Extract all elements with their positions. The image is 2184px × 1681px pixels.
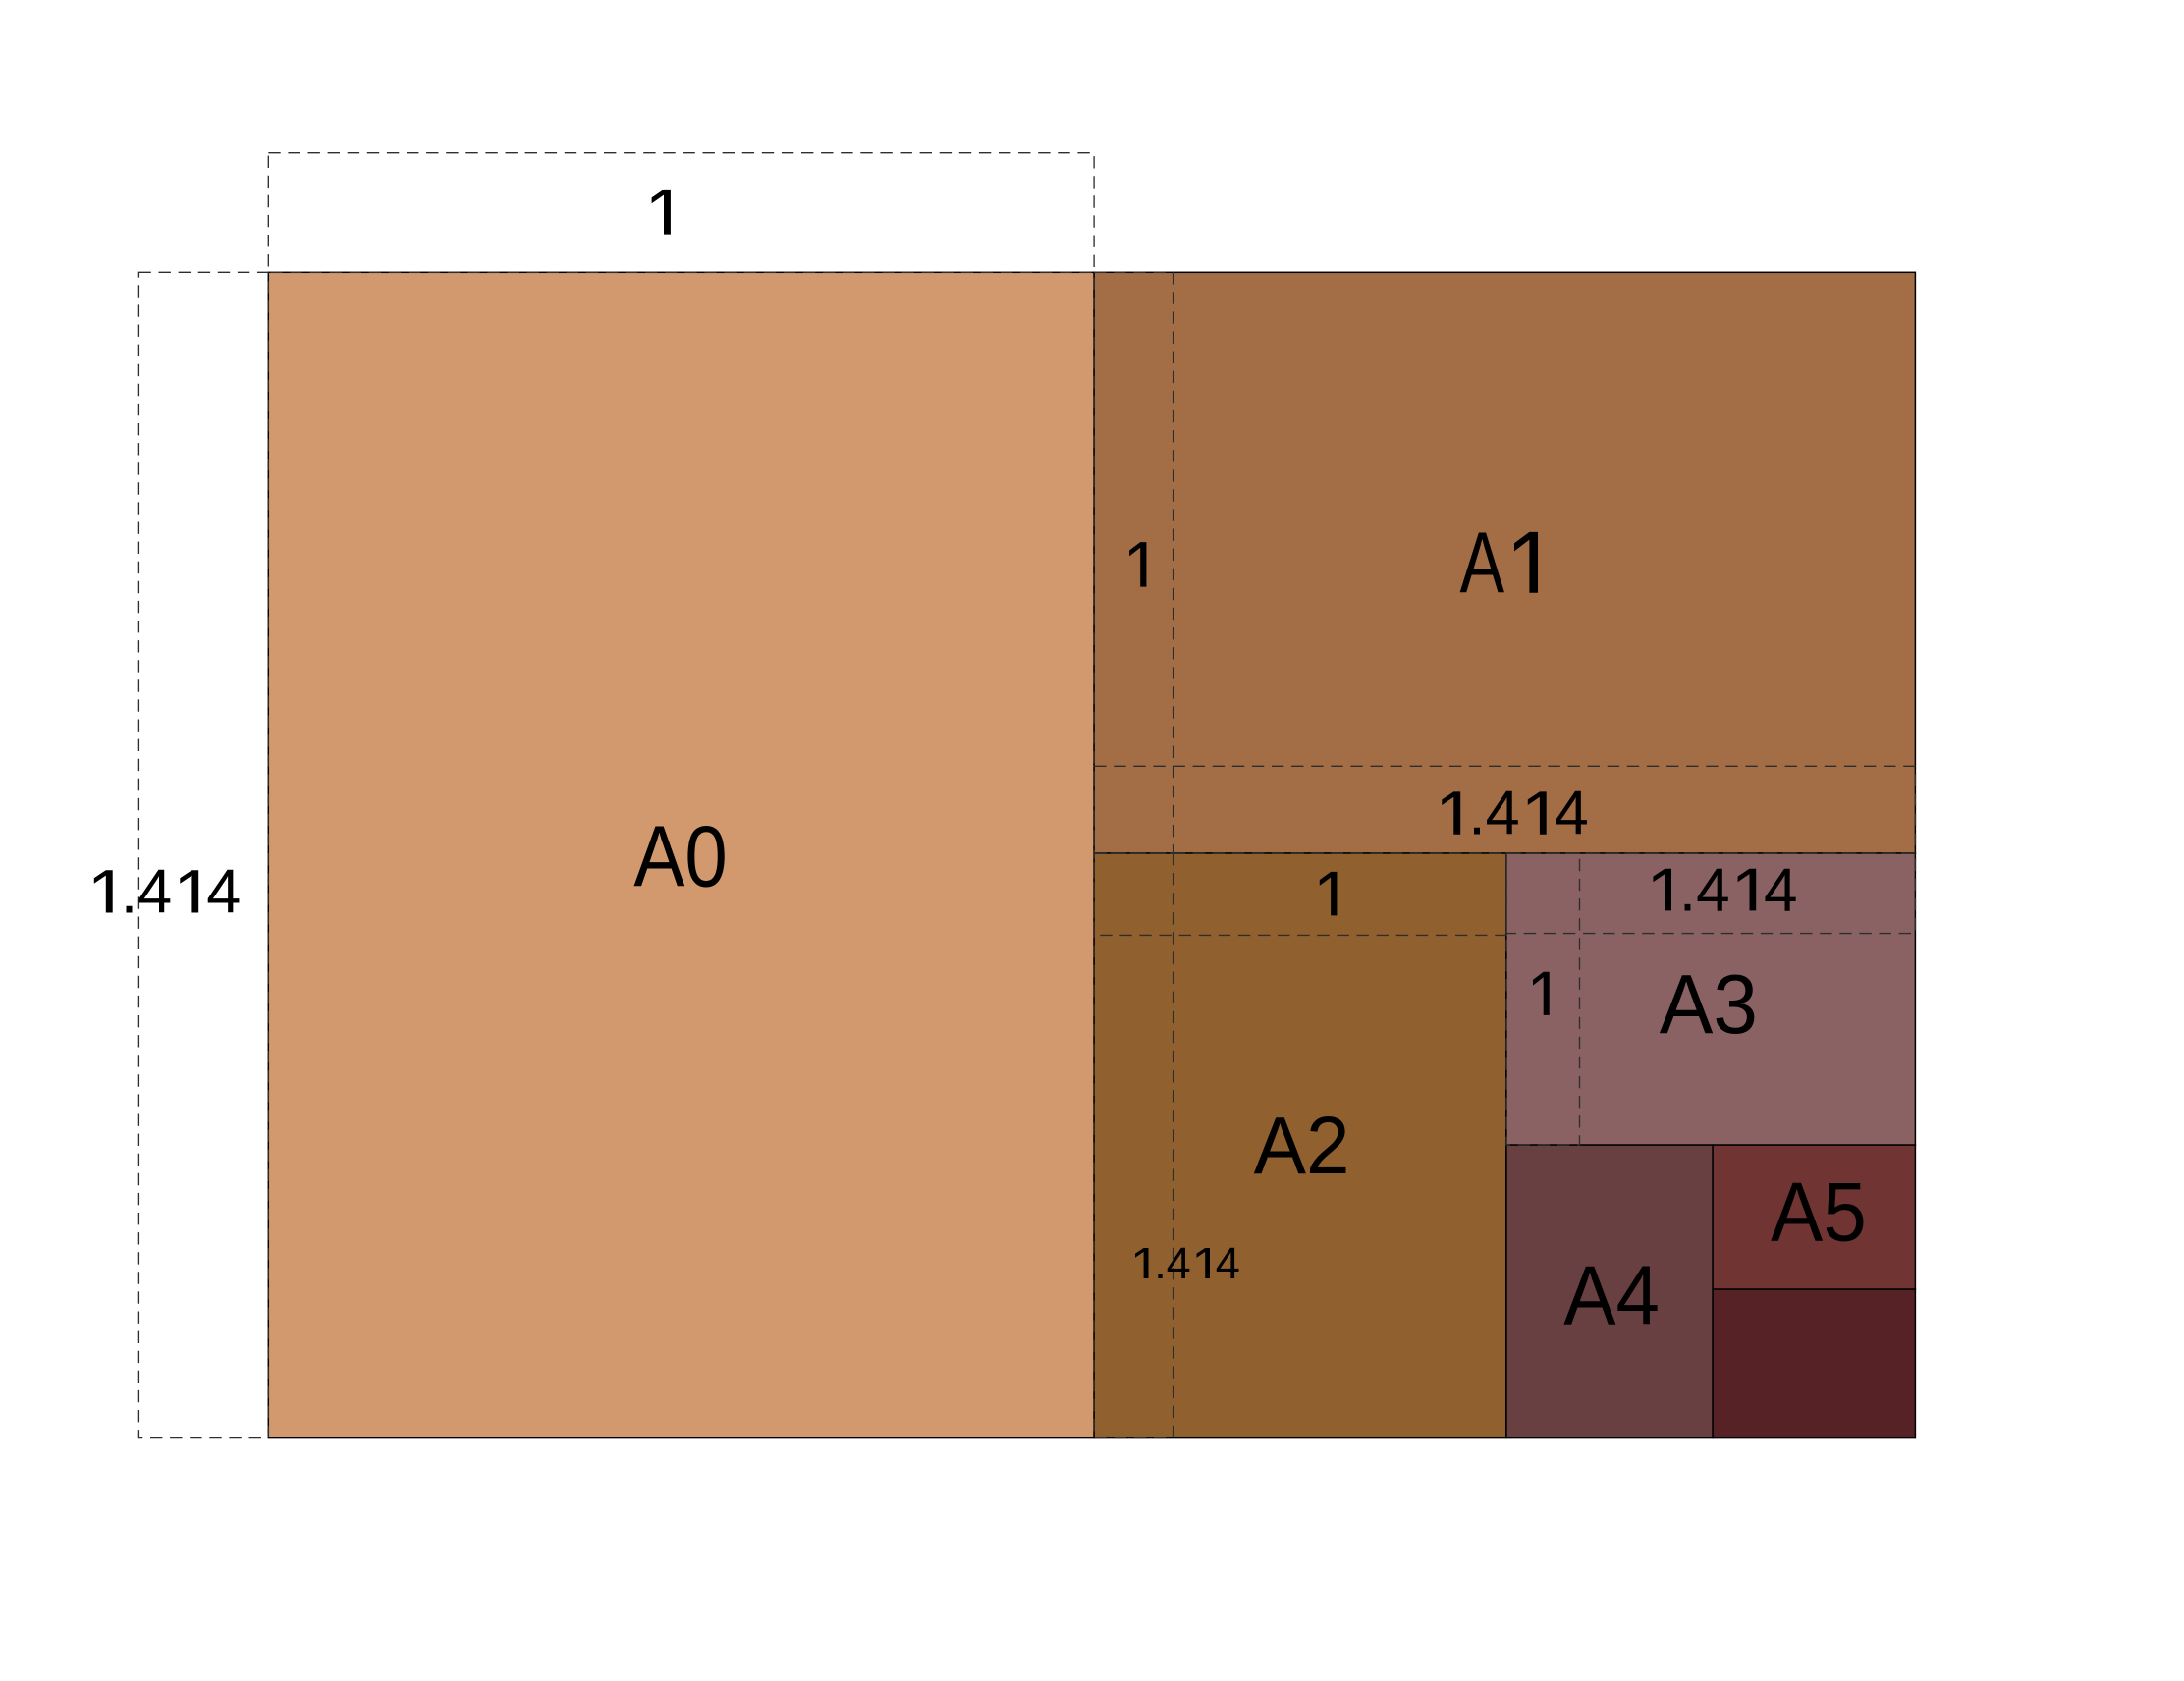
svg-text:A3: A3 [1660, 958, 1758, 1052]
svg-text:4: 4 [1216, 1238, 1240, 1288]
svg-text:.: . [1679, 856, 1696, 924]
svg-text:.: . [1154, 1238, 1167, 1288]
svg-text:A0: A0 [633, 808, 727, 905]
svg-text:4: 4 [1764, 856, 1797, 924]
svg-text:A2: A2 [1254, 1100, 1350, 1191]
svg-text:A5: A5 [1771, 1166, 1867, 1259]
svg-text:.: . [1468, 780, 1486, 848]
svg-text:.: . [121, 858, 138, 927]
svg-text:4: 4 [137, 858, 172, 927]
svg-text:4: 4 [1486, 780, 1520, 848]
svg-text:A: A [1460, 515, 1505, 612]
svg-text:4: 4 [1696, 856, 1729, 924]
svg-text:4: 4 [206, 858, 241, 927]
svg-text:4: 4 [1555, 780, 1589, 848]
svg-text:4: 4 [1167, 1238, 1191, 1288]
svg-text:A4: A4 [1563, 1249, 1660, 1342]
